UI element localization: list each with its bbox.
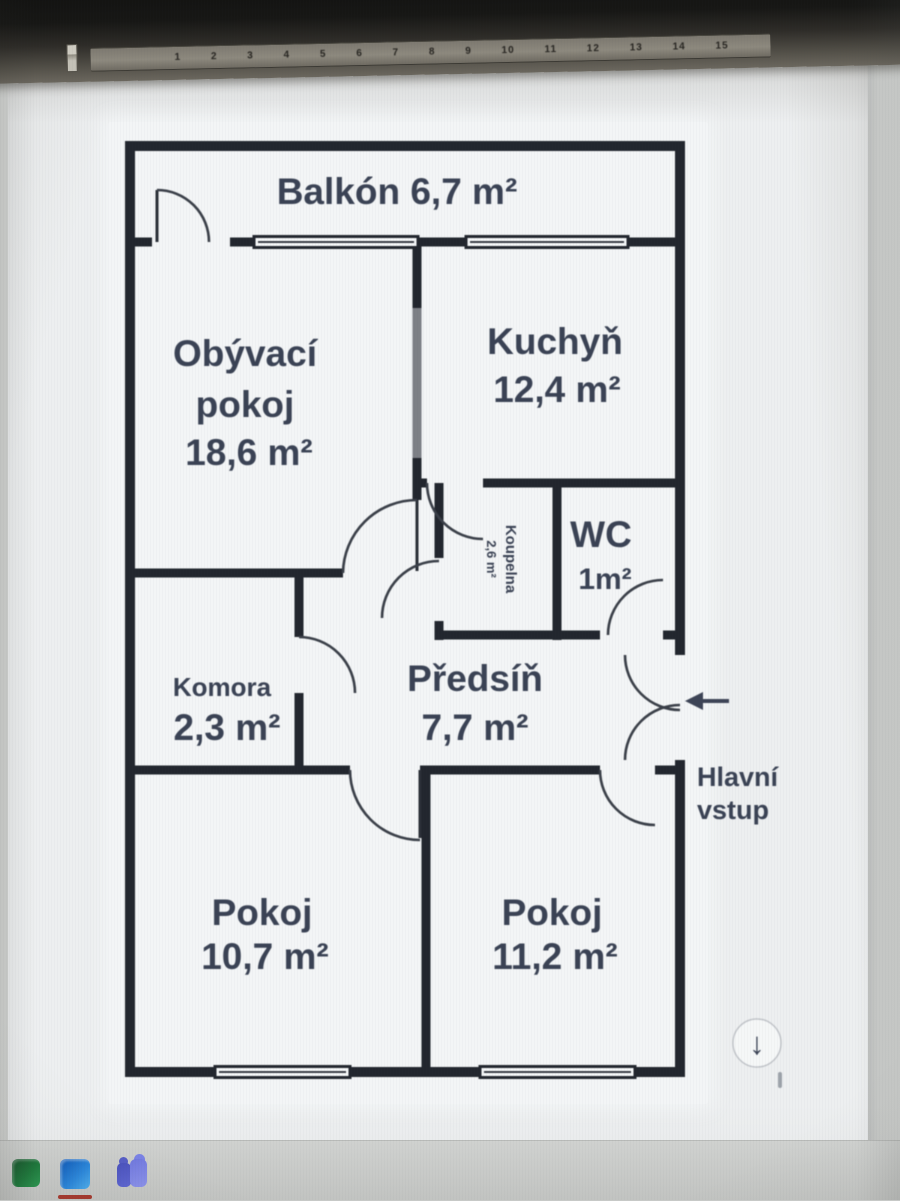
wc-area: 1m²: [578, 563, 631, 596]
room1-label: Pokoj: [212, 892, 313, 933]
wc-label: WC: [570, 514, 632, 555]
main-entrance-label: Hlavní: [697, 762, 780, 792]
living-room-area: 18,6 m²: [185, 432, 313, 473]
word-app-icon[interactable]: [60, 1159, 90, 1189]
bathroom-label: Koupelna: [502, 525, 519, 594]
teams-person-icon: [117, 1163, 131, 1187]
document-page: Balkón 6,7 m² Obývací pokoj 18,6 m² Kuch…: [8, 58, 868, 1142]
main-entrance-label2: vstup: [697, 795, 769, 825]
bathroom-area: 2,6 m²: [484, 540, 499, 578]
balcony-label: Balkón 6,7 m²: [277, 171, 518, 212]
room2-label: Pokoj: [502, 892, 603, 933]
photo-glare: [410, 308, 424, 458]
teams-person-icon: [130, 1159, 147, 1187]
taskbar: [0, 1140, 900, 1201]
living-room-label: Obývací: [173, 333, 319, 374]
excel-app-icon[interactable]: [12, 1159, 40, 1187]
page-background-edge: [868, 58, 900, 1140]
room1-area: 10,7 m²: [201, 936, 329, 977]
kitchen-label: Kuchyň: [487, 321, 623, 362]
kitchen-area: 12,4 m²: [493, 369, 621, 410]
indent-marker[interactable]: [66, 44, 78, 72]
floorplan-drawing: Balkón 6,7 m² Obývací pokoj 18,6 m² Kuch…: [122, 138, 790, 1088]
living-room-label2: pokoj: [196, 384, 295, 425]
arrow-down-icon: ↓: [749, 1026, 765, 1061]
ruler-numbers: 1 2 3 4 5 6 7 8 9 10 11 12 13 14 15: [90, 35, 728, 70]
horizontal-ruler[interactable]: 1 2 3 4 5 6 7 8 9 10 11 12 13 14 15: [90, 34, 770, 72]
komora-label: Komora: [173, 672, 272, 702]
entrance-arrow-icon: [685, 692, 729, 710]
komora-area: 2,3 m²: [174, 707, 281, 748]
scroll-down-button[interactable]: ↓: [733, 1019, 781, 1067]
teams-app-icon[interactable]: [116, 1159, 146, 1189]
room2-area: 11,2 m²: [492, 936, 617, 977]
scrollbar-thumb[interactable]: [778, 1072, 782, 1088]
hall-label: Předsíň: [407, 658, 543, 699]
hall-area: 7,7 m²: [422, 707, 529, 748]
